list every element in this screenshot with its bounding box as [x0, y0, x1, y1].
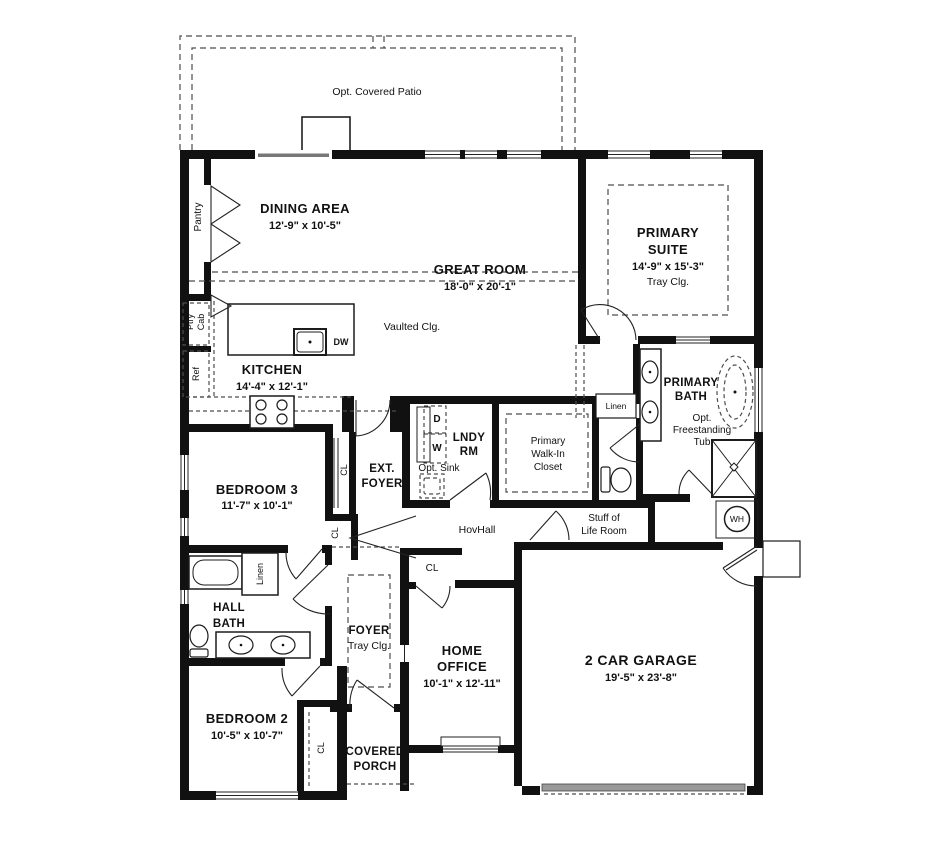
laundry-door — [450, 473, 491, 500]
walkin-label-2: Walk-In — [531, 449, 565, 460]
opt-sink-label: Opt. Sink — [418, 463, 460, 474]
foyer-name: FOYER — [348, 625, 390, 637]
water-heater-label: WH — [730, 514, 744, 524]
hall-bathtub — [189, 556, 242, 589]
vaulted-ceiling-label: Vaulted Clg. — [384, 321, 440, 333]
suite-name-2: SUITE — [648, 242, 688, 257]
bed2-closet-label: CL — [316, 742, 326, 754]
porch-name-1: COVERED — [346, 746, 405, 758]
foyer-ceiling: Tray Clg. — [348, 640, 390, 652]
toilet-room-door — [610, 424, 640, 462]
kitchen-island — [228, 304, 354, 355]
walkin-label-1: Primary — [531, 436, 565, 447]
tub-label-1: Opt. — [693, 413, 712, 424]
hall-linen-label: Linen — [255, 563, 265, 585]
great-room-name: GREAT ROOM — [434, 262, 527, 277]
bedroom2-name: BEDROOM 2 — [206, 711, 288, 726]
stuff-room-door — [530, 511, 569, 540]
pantry-doors — [211, 186, 240, 262]
office-window-sill — [441, 737, 500, 746]
garage-dims: 19'-5" x 23'-8" — [605, 672, 677, 684]
garage-side-landing — [763, 541, 800, 577]
sliding-door — [258, 154, 329, 158]
garage-entry-door — [723, 546, 757, 586]
dryer-label: D — [433, 414, 440, 425]
garage-door — [542, 784, 745, 791]
patio-label: Opt. Covered Patio — [332, 86, 421, 98]
garage-name: 2 CAR GARAGE — [585, 652, 697, 668]
ext-foyer-1: EXT. — [369, 463, 395, 475]
shower-door — [679, 470, 712, 494]
floor-plan-drawing: Opt. Covered Patio DINING AREA 12'-9" x … — [0, 0, 928, 846]
front-door — [350, 680, 394, 708]
primary-bath-name-1: PRIMARY — [664, 377, 719, 389]
pantry-label: Pantry — [193, 203, 204, 232]
office-name-2: OFFICE — [437, 659, 487, 674]
bedroom3-door — [286, 549, 322, 579]
ext-foyer-2: FOYER — [361, 478, 403, 490]
primary-vanity — [640, 349, 661, 441]
hall-toilet — [190, 625, 208, 647]
office-name-1: HOME — [442, 643, 483, 658]
kitchen-dims: 14'-4" x 12'-1" — [236, 381, 308, 393]
primary-bath-name-2: BATH — [675, 391, 707, 403]
bedroom2-dims: 10'-5" x 10'-7" — [211, 730, 283, 742]
suite-name-1: PRIMARY — [637, 225, 699, 240]
closet-slider — [334, 438, 338, 508]
walkin-label-3: Closet — [534, 462, 563, 473]
tub-label-3: Tub — [694, 437, 711, 448]
bedroom3-dims: 11'-7" x 10'-1" — [221, 500, 292, 512]
primary-toilet — [601, 467, 610, 492]
hovhall-label: HovHall — [459, 524, 496, 536]
back-door — [356, 400, 390, 436]
laundry-name-1: LNDY — [453, 432, 486, 444]
dining-name: DINING AREA — [260, 201, 350, 216]
suite-dims: 14'-9" x 15'-3" — [632, 261, 704, 273]
kitchen-name: KITCHEN — [242, 362, 303, 377]
porch-name-2: PORCH — [353, 761, 396, 773]
office-closet-label: CL — [426, 563, 439, 574]
ptry-label: Ptry — [185, 314, 195, 331]
floor-plan: Opt. Covered Patio DINING AREA 12'-9" x … — [0, 0, 928, 846]
ref-label: Ref — [191, 367, 201, 382]
hall-closet-label: CL — [330, 527, 340, 539]
stuff-label-2: Life Room — [581, 526, 627, 537]
primary-linen-label: Linen — [606, 401, 627, 411]
stuff-label-1: Stuff of — [588, 513, 620, 524]
bed3-closet-label: CL — [339, 464, 349, 476]
hall-bath-door — [293, 565, 330, 614]
dining-dims: 12'-9" x 10'-5" — [269, 220, 341, 232]
tub-label-2: Freestanding — [673, 425, 731, 436]
patio-chimney — [302, 117, 350, 151]
hall-bath-2: BATH — [213, 618, 245, 630]
cooktop — [250, 396, 294, 428]
office-closet-door — [416, 586, 450, 608]
great-room-dims: 18'-0" x 20'-1" — [444, 281, 516, 293]
office-dims: 10'-1" x 12'-11" — [423, 678, 500, 690]
cab-label: Cab — [196, 314, 206, 331]
washer-label: W — [432, 443, 442, 454]
laundry-name-2: RM — [460, 446, 479, 458]
bedroom2-door — [282, 666, 320, 696]
bedroom3-name: BEDROOM 3 — [216, 482, 298, 497]
hall-bath-1: HALL — [213, 602, 245, 614]
dishwasher-label: DW — [334, 337, 349, 347]
suite-ceiling: Tray Clg. — [647, 276, 689, 288]
hall-vanity — [216, 632, 310, 658]
